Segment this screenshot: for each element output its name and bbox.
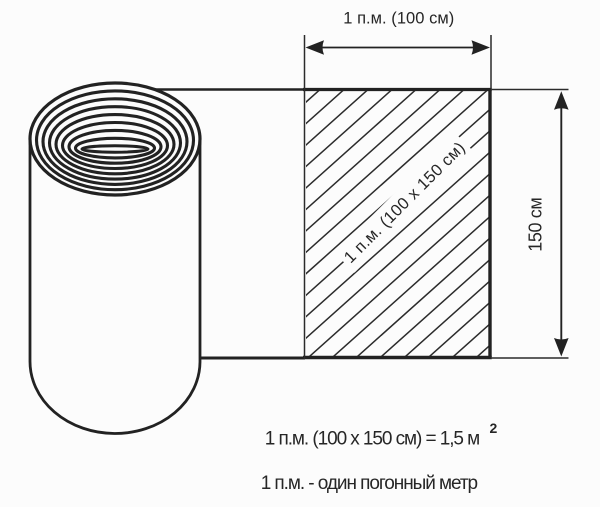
svg-text:150 см: 150 см	[525, 197, 545, 252]
svg-text:1 п.м. (100 х 150 см) = 1,5 м: 1 п.м. (100 х 150 см) = 1,5 м	[265, 428, 480, 449]
svg-text:1 п.м. - один погонный метр: 1 п.м. - один погонный метр	[261, 473, 478, 494]
svg-text:1 п.м. (100 см): 1 п.м. (100 см)	[343, 10, 454, 28]
svg-text:2: 2	[490, 420, 498, 436]
